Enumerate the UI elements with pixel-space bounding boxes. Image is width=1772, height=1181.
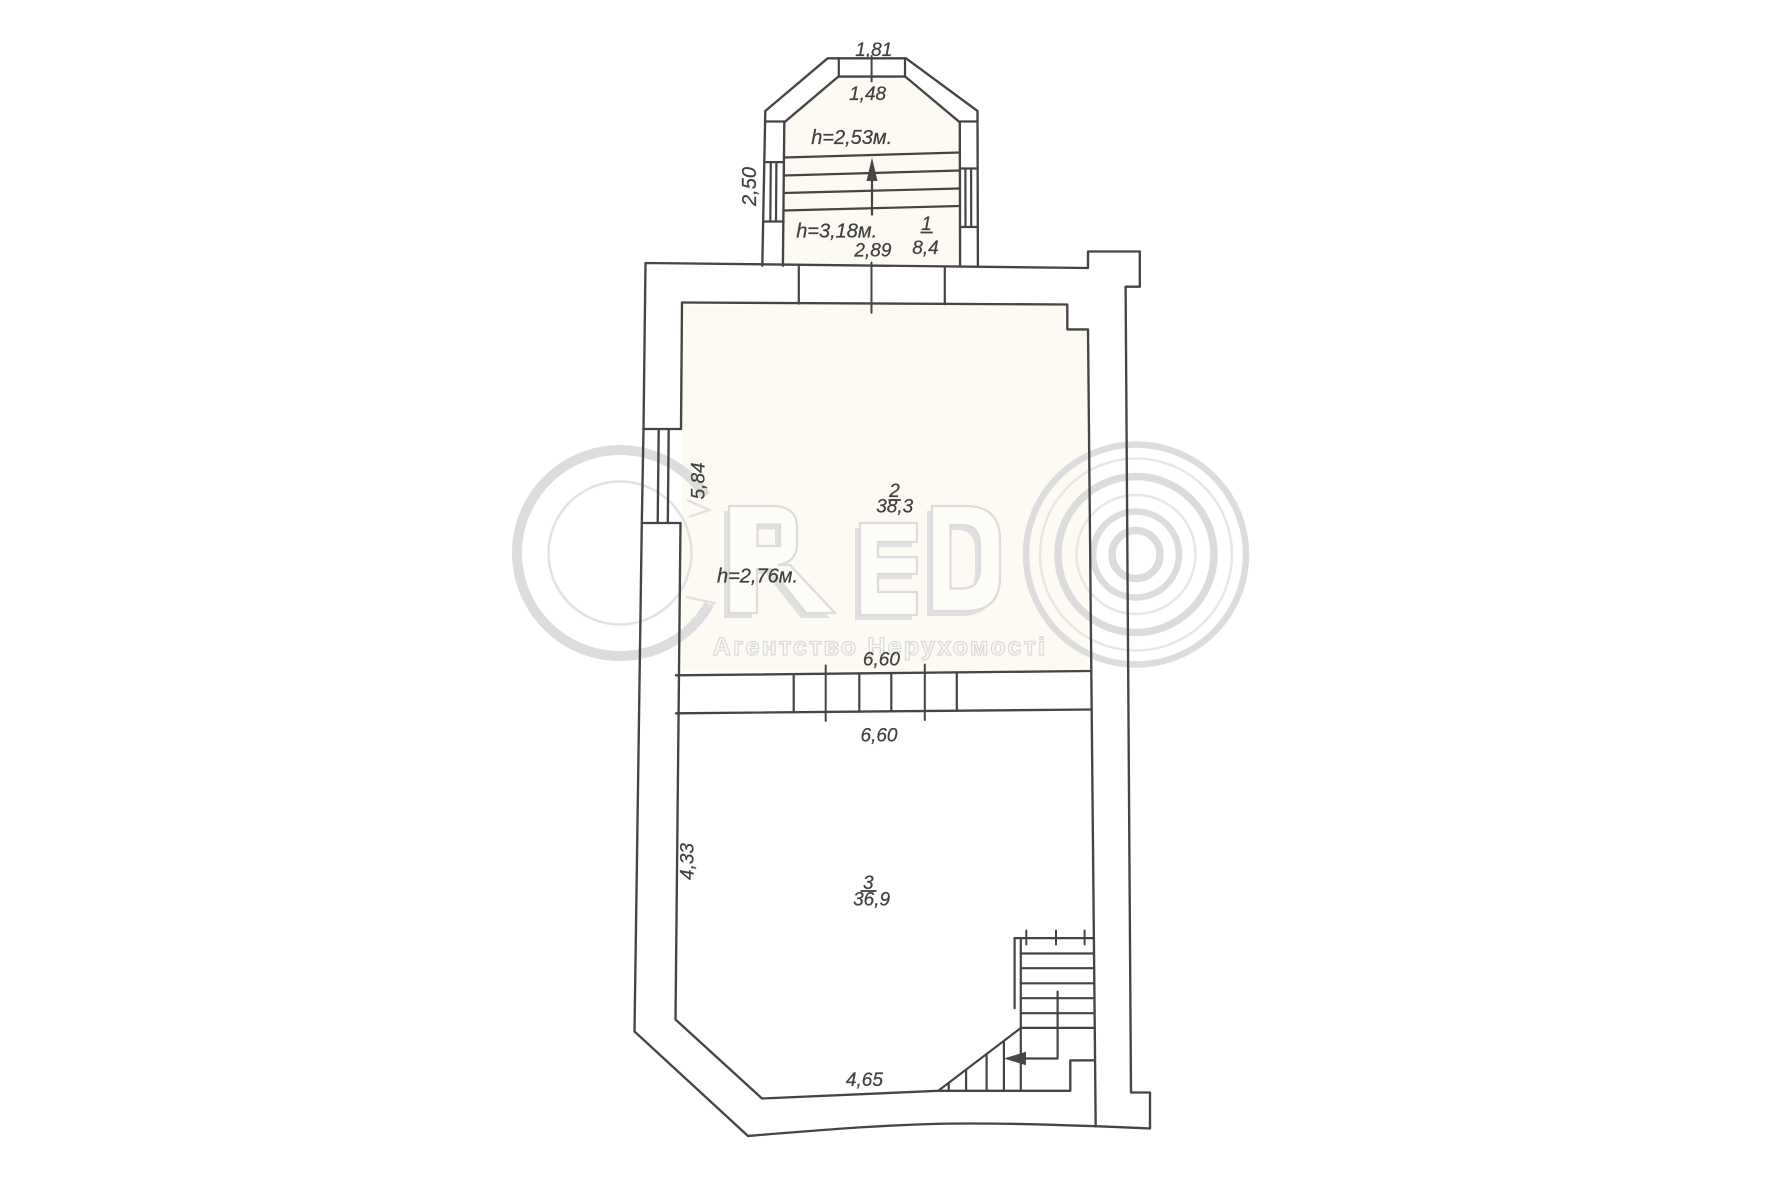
svg-text:36,9: 36,9 bbox=[853, 890, 890, 911]
svg-text:6,60: 6,60 bbox=[863, 649, 900, 670]
svg-text:8,4: 8,4 bbox=[912, 238, 938, 259]
svg-text:h=2,53м.: h=2,53м. bbox=[811, 127, 892, 149]
svg-text:1,81: 1,81 bbox=[855, 40, 892, 61]
svg-text:2,89: 2,89 bbox=[853, 241, 891, 262]
svg-text:2,50: 2,50 bbox=[739, 167, 761, 207]
svg-text:4,33: 4,33 bbox=[677, 843, 698, 880]
svg-text:1,48: 1,48 bbox=[849, 84, 886, 105]
svg-text:h=2,76м.: h=2,76м. bbox=[717, 566, 798, 588]
svg-text:4,65: 4,65 bbox=[846, 1070, 883, 1091]
svg-text:6,60: 6,60 bbox=[861, 726, 898, 747]
svg-text:5,84: 5,84 bbox=[689, 462, 710, 499]
svg-text:h=3,18м.: h=3,18м. bbox=[796, 221, 877, 243]
